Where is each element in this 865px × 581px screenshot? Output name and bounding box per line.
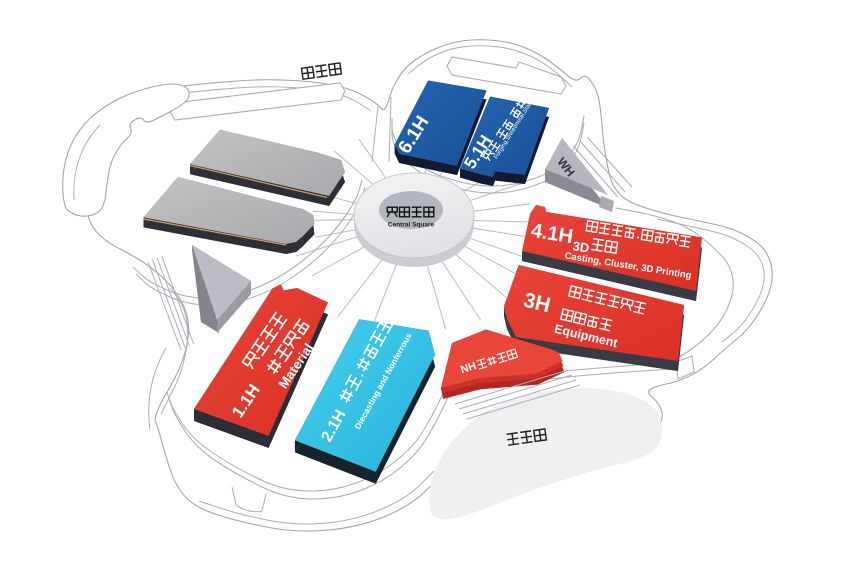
svg-text:Central Square: Central Square xyxy=(388,222,435,229)
